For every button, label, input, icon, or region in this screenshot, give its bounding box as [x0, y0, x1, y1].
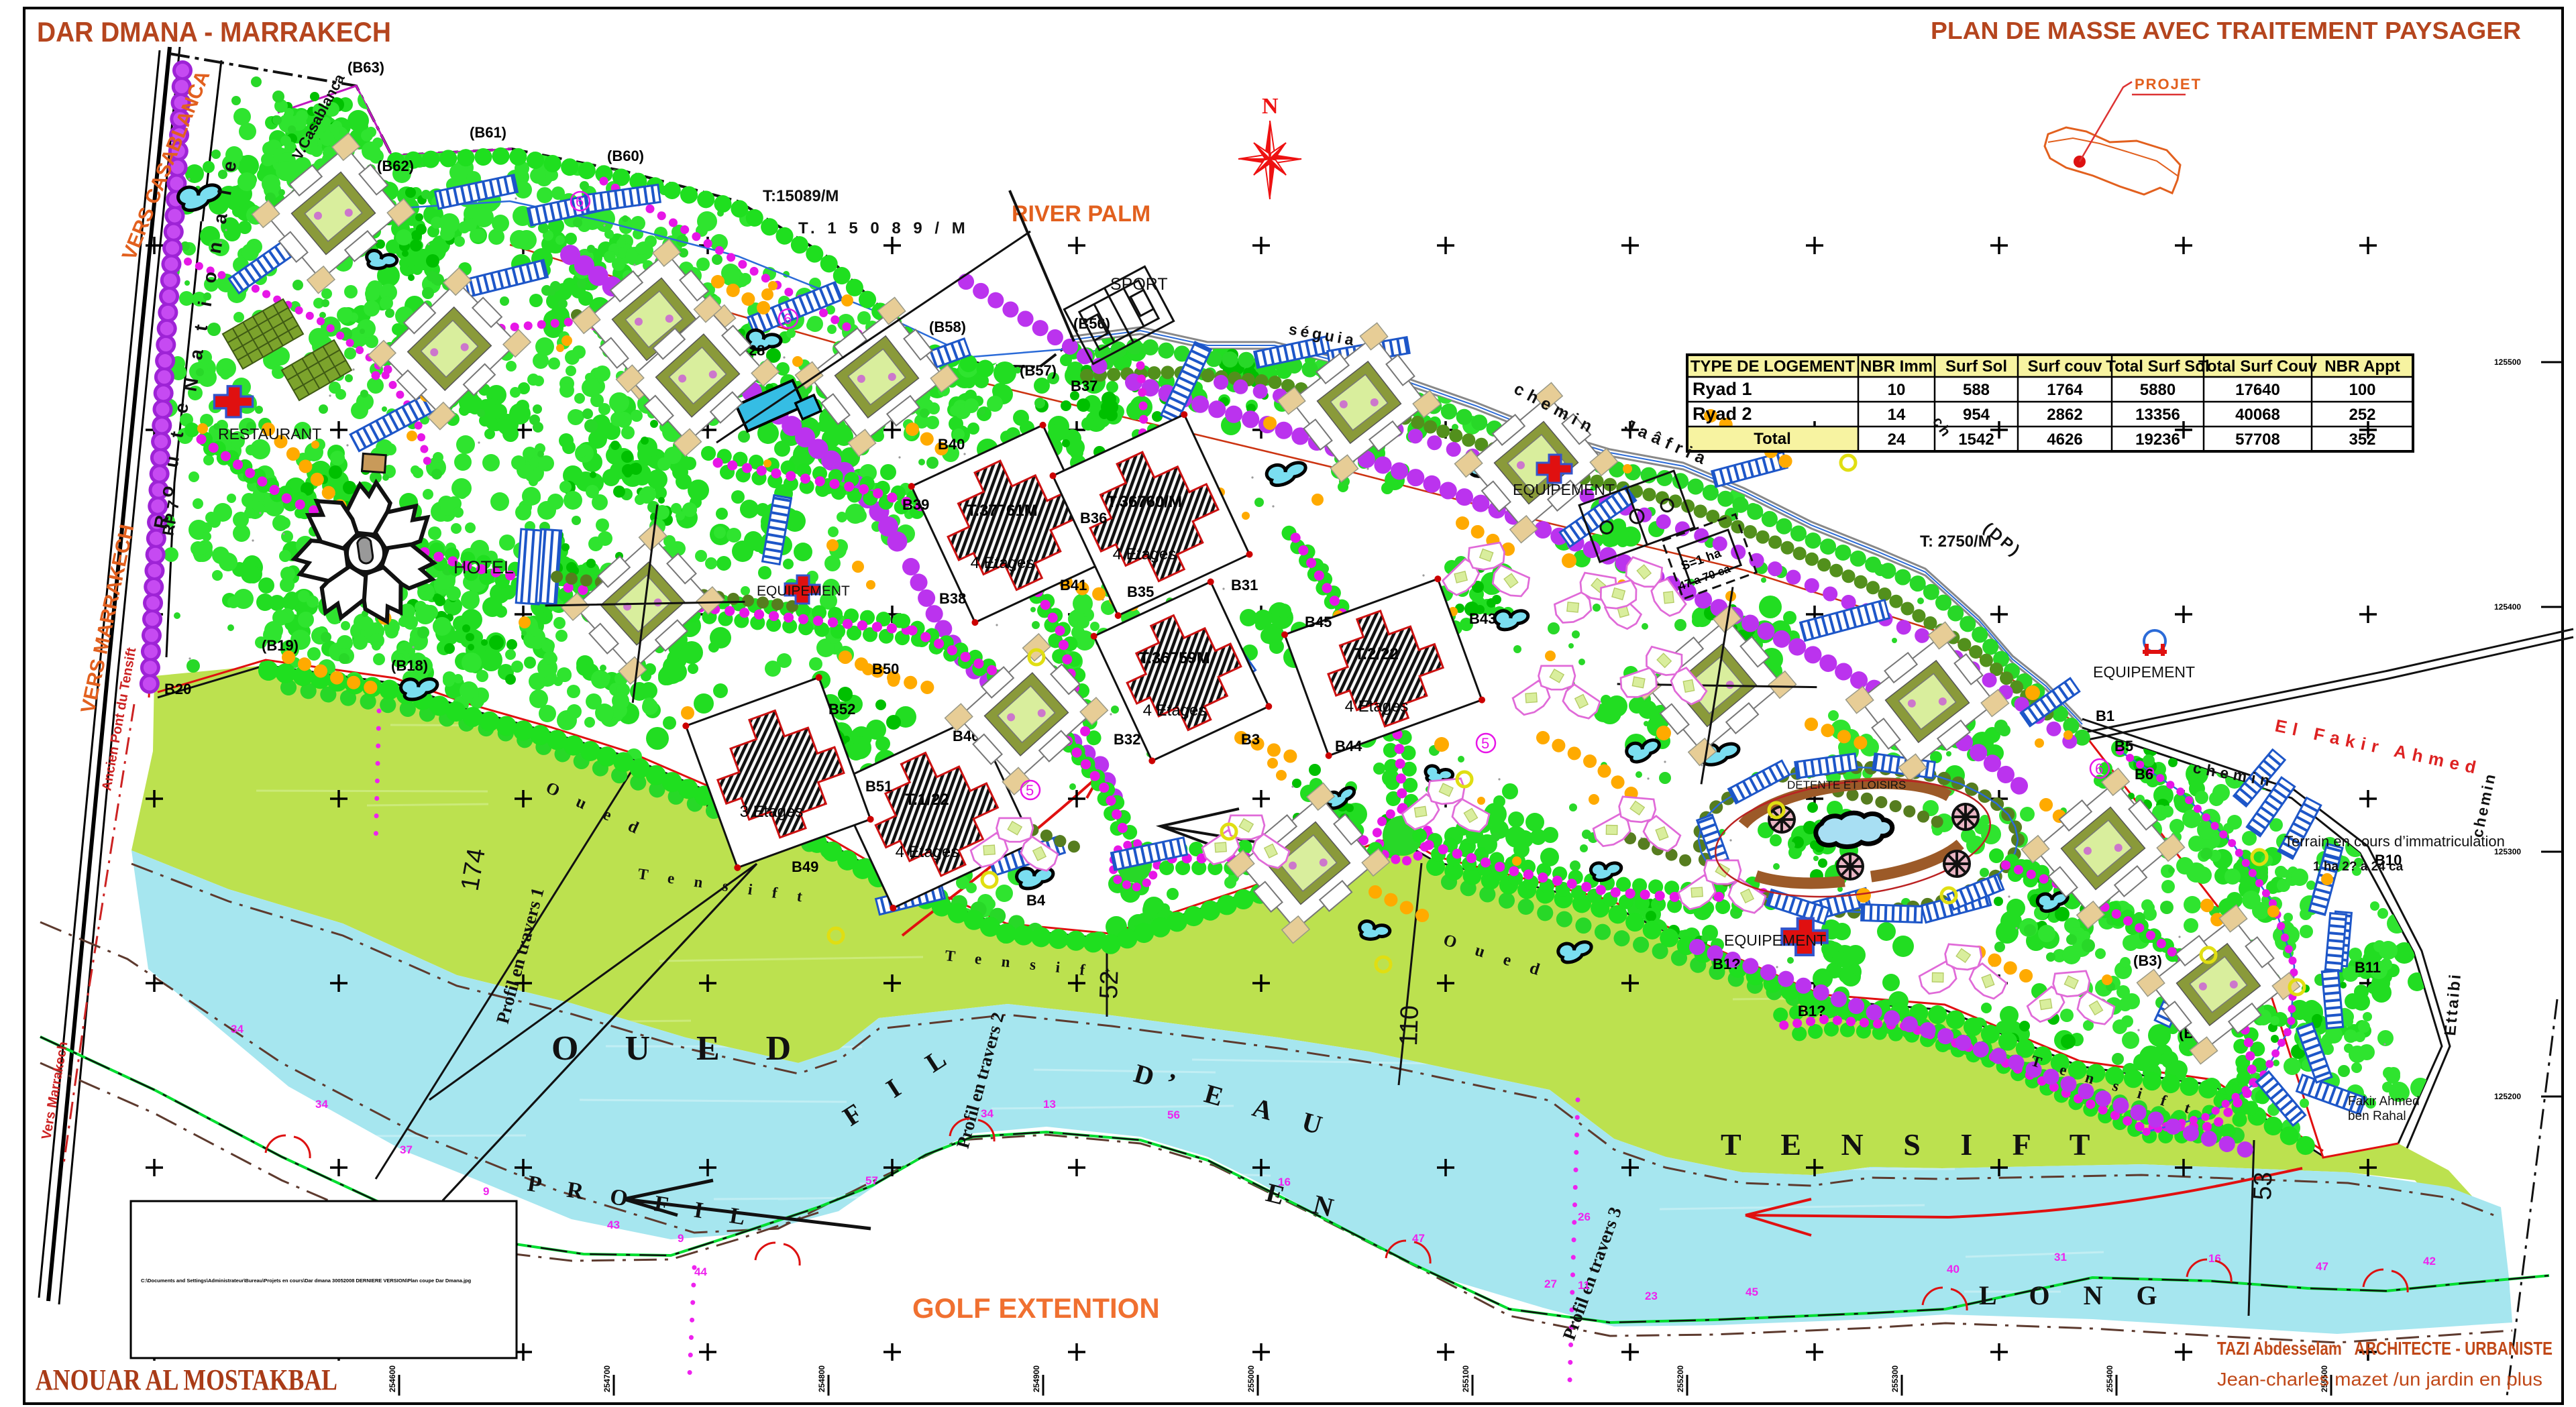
svg-text:954: 954: [1963, 406, 1990, 424]
svg-text:B50: B50: [872, 661, 899, 677]
svg-text:56: 56: [1167, 1109, 1180, 1121]
svg-text:255200: 255200: [1676, 1365, 1685, 1392]
svg-text:34: 34: [315, 1098, 328, 1111]
svg-text:EQUIPEMENT: EQUIPEMENT: [1513, 481, 1615, 498]
svg-text:254600: 254600: [388, 1365, 397, 1392]
svg-text:255300: 255300: [1890, 1365, 1900, 1392]
svg-text:Total: Total: [1754, 430, 1791, 448]
svg-text:255400: 255400: [2105, 1365, 2114, 1392]
svg-text:SPORT: SPORT: [1110, 275, 1168, 294]
svg-text:Jean-charles mazet /un jardin: Jean-charles mazet /un jardin en plus: [2217, 1369, 2542, 1390]
svg-text:T: 2750/M: T: 2750/M: [1920, 532, 1992, 551]
svg-text:53: 53: [2249, 1172, 2277, 1201]
svg-text:B52: B52: [828, 701, 855, 718]
svg-text:B51: B51: [865, 778, 892, 795]
svg-text:44: 44: [694, 1265, 707, 1278]
svg-text:2862: 2862: [2047, 406, 2082, 424]
svg-text:254900: 254900: [1032, 1365, 1041, 1392]
svg-text:252: 252: [2349, 406, 2375, 424]
svg-text:Surf couv: Surf couv: [2028, 357, 2102, 376]
svg-text:(B3): (B3): [2133, 952, 2162, 969]
svg-text:26: 26: [1578, 1211, 1591, 1223]
svg-text:100: 100: [2349, 381, 2375, 399]
svg-text:Terrain en cours d’immatricula: Terrain en cours d’immatriculation: [2284, 833, 2505, 850]
svg-text:B1?: B1?: [1713, 956, 1741, 972]
svg-text:TYPE DE LOGEMENT: TYPE DE LOGEMENT: [1690, 357, 1856, 376]
svg-text:1542: 1542: [1958, 431, 1994, 449]
svg-text:31: 31: [2054, 1251, 2067, 1263]
svg-text:9: 9: [678, 1232, 684, 1245]
svg-text:57708: 57708: [2235, 431, 2280, 449]
svg-text:47: 47: [2316, 1260, 2328, 1273]
svg-text:34: 34: [981, 1107, 994, 1120]
svg-text:6: 6: [784, 311, 792, 327]
svg-text:B49: B49: [792, 858, 818, 875]
svg-text:4 Etages: 4 Etages: [971, 554, 1034, 572]
svg-text:EQUIPEMENT: EQUIPEMENT: [757, 583, 850, 599]
svg-text:254800: 254800: [817, 1365, 826, 1392]
svg-text:(B58): (B58): [929, 319, 966, 335]
svg-text:57: 57: [865, 1174, 878, 1187]
svg-text:Fakir Ahmed: Fakir Ahmed: [2348, 1094, 2420, 1109]
svg-text:ANOUAR AL MOSTAKBAL: ANOUAR AL MOSTAKBAL: [36, 1363, 337, 1396]
svg-text:17640: 17640: [2235, 381, 2280, 399]
svg-text:254700: 254700: [602, 1365, 612, 1392]
svg-text:4 Etages: 4 Etages: [896, 843, 959, 861]
svg-text:9: 9: [483, 1185, 489, 1198]
svg-text:B44: B44: [1335, 738, 1362, 754]
svg-text:Surf Sol: Surf Sol: [1945, 357, 2007, 376]
svg-text:RIVER PALM: RIVER PALM: [1012, 201, 1150, 227]
svg-text:10: 10: [1888, 381, 1906, 399]
svg-text:B45: B45: [1305, 614, 1332, 630]
svg-text:11: 11: [1578, 1279, 1590, 1292]
svg-text:TAZI Abdesselam ARCHITECTE -: TAZI Abdesselam ARCHITECTE - URBANISTE: [2217, 1338, 2553, 1359]
svg-text:19236: 19236: [2135, 431, 2180, 449]
svg-text:B5: B5: [2114, 738, 2133, 754]
svg-text:37: 37: [400, 1143, 413, 1156]
svg-text:B40: B40: [938, 436, 965, 453]
svg-text:B31: B31: [1231, 577, 1258, 594]
svg-text:O U E D: O U E D: [551, 1029, 810, 1068]
svg-text:PROJET: PROJET: [2135, 76, 2202, 93]
svg-text:Total Surf Couv: Total Surf Couv: [2198, 357, 2318, 376]
svg-text:27: 27: [1544, 1278, 1557, 1290]
svg-text:4 Etages: 4 Etages: [1345, 697, 1409, 716]
svg-text:Total Surf Sol: Total Surf Sol: [2106, 357, 2209, 376]
svg-text:13: 13: [1043, 1098, 1056, 1111]
svg-text:N: N: [1262, 94, 1279, 119]
svg-text:B36: B36: [1080, 510, 1107, 526]
svg-text:14: 14: [1888, 406, 1906, 424]
svg-text:24: 24: [1888, 431, 1906, 449]
svg-text:Ryad 1: Ryad 1: [1693, 379, 1752, 399]
svg-text:(B63): (B63): [347, 59, 384, 76]
svg-text:(B57): (B57): [1020, 362, 1057, 379]
svg-text:T:15089/M: T:15089/M: [763, 187, 839, 205]
svg-text:40068: 40068: [2235, 406, 2280, 424]
svg-text:L O N G: L O N G: [1979, 1280, 2171, 1310]
svg-text:34: 34: [231, 1023, 244, 1035]
svg-text:40: 40: [1947, 1263, 1960, 1276]
svg-text:B43: B43: [1469, 610, 1496, 627]
svg-text:(B62): (B62): [377, 158, 414, 174]
svg-text:DETENTE ET LOISIRS: DETENTE ET LOISIRS: [1787, 779, 1906, 791]
svg-text:125400: 125400: [2494, 602, 2521, 612]
svg-text:B1: B1: [2096, 708, 2114, 724]
svg-text:110: 110: [1395, 1005, 1424, 1046]
svg-text:HOTEL: HOTEL: [453, 557, 514, 577]
svg-text:23: 23: [1645, 1290, 1658, 1302]
svg-text:352: 352: [2349, 431, 2375, 449]
svg-text:B4: B4: [1026, 892, 1046, 909]
svg-text:RESTAURANT: RESTAURANT: [218, 425, 321, 443]
svg-text:6: 6: [576, 193, 584, 210]
svg-text:T.36759M: T.36759M: [1139, 649, 1210, 667]
svg-text:GOLF EXTENTION: GOLF EXTENTION: [912, 1292, 1160, 1324]
svg-text:4 Etages: 4 Etages: [1143, 701, 1207, 720]
svg-text:B35: B35: [1127, 583, 1154, 600]
svg-text:43: 43: [607, 1219, 620, 1231]
svg-text:EQUIPEMENT: EQUIPEMENT: [2093, 663, 2195, 681]
svg-text:PLAN DE MASSE AVEC TRAITEMENT: PLAN DE MASSE AVEC TRAITEMENT PAYSAGER: [1931, 17, 2521, 44]
svg-text:6: 6: [2095, 761, 2103, 777]
svg-text:16: 16: [1278, 1176, 1291, 1188]
svg-text:42: 42: [2423, 1255, 2436, 1268]
svg-text:B11: B11: [2355, 959, 2381, 976]
svg-text:NBR Imm: NBR Imm: [1860, 357, 1933, 376]
svg-text:C:\Documents and Settings\Admi: C:\Documents and Settings\Administrateur…: [141, 1278, 472, 1284]
svg-text:T E N S I F T: T E N S I F T: [1721, 1127, 2106, 1162]
svg-text:T.37761M: T.37761M: [967, 502, 1037, 520]
svg-text:(B60): (B60): [607, 148, 644, 164]
svg-text:4626: 4626: [2047, 431, 2082, 449]
svg-text:T.36760/M: T.36760/M: [1107, 493, 1182, 511]
svg-text:T.2/22: T.2/22: [1354, 645, 1398, 663]
svg-text:5: 5: [1481, 735, 1489, 752]
svg-text:B1?: B1?: [1798, 1003, 1826, 1019]
svg-text:ben Rahal: ben Rahal: [2348, 1109, 2406, 1123]
svg-text:B3: B3: [1241, 731, 1260, 748]
svg-text:13356: 13356: [2135, 406, 2180, 424]
svg-text:4 Etages: 4 Etages: [1113, 545, 1177, 563]
svg-text:(B19): (B19): [262, 637, 299, 654]
svg-text:B38: B38: [939, 590, 966, 607]
svg-text:5880: 5880: [2140, 381, 2176, 399]
svg-text:45: 45: [1746, 1286, 1758, 1298]
svg-text:DAR DMANA - MARRAKECH: DAR DMANA - MARRAKECH: [37, 16, 391, 48]
svg-text:1 ha 2? a 24 ca: 1 ha 2? a 24 ca: [2313, 860, 2404, 874]
svg-text:3 Etages: 3 Etages: [740, 803, 804, 821]
svg-text:T. 1 5 0 8 9 / M: T. 1 5 0 8 9 / M: [798, 219, 969, 237]
svg-text:B32: B32: [1114, 731, 1140, 748]
svg-text:125200: 125200: [2494, 1092, 2521, 1101]
svg-text:255100: 255100: [1461, 1365, 1470, 1392]
svg-text:B39: B39: [902, 496, 929, 513]
svg-text:(B18): (B18): [391, 657, 428, 674]
svg-text:B6: B6: [2135, 766, 2153, 783]
svg-text:B20: B20: [164, 681, 191, 697]
svg-text:255000: 255000: [1246, 1365, 1256, 1392]
svg-text:1764: 1764: [2047, 381, 2083, 399]
svg-text:(B61): (B61): [470, 124, 506, 141]
svg-text:5: 5: [1026, 782, 1034, 799]
svg-text:Ryad 2: Ryad 2: [1693, 404, 1752, 424]
svg-text:125500: 125500: [2494, 357, 2521, 367]
svg-text:B41: B41: [1060, 577, 1087, 594]
svg-text:T.1/22: T.1/22: [905, 791, 949, 809]
svg-text:588: 588: [1963, 381, 1990, 399]
svg-text:EQUIPEMENT: EQUIPEMENT: [1724, 932, 1826, 949]
svg-text:B37: B37: [1071, 378, 1097, 394]
svg-text:NBR Appt: NBR Appt: [2324, 357, 2400, 376]
